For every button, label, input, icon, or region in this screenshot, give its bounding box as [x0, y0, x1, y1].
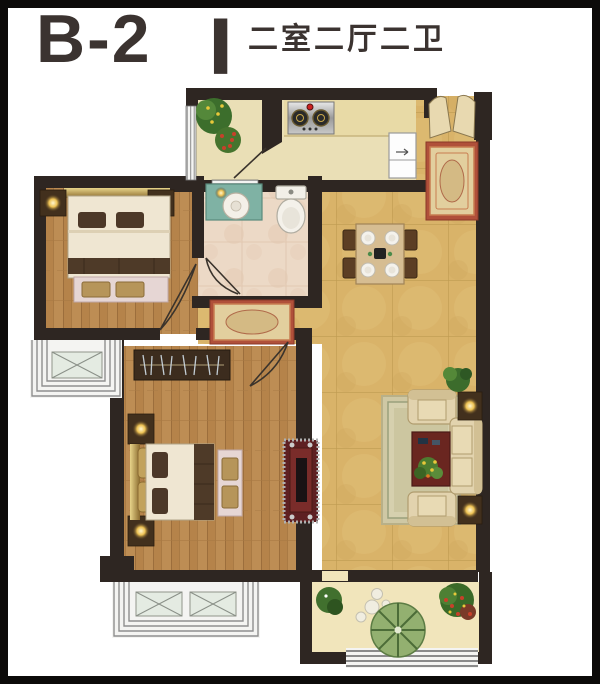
bay-window-bottom — [112, 582, 260, 638]
bed-1-bench — [74, 277, 168, 302]
armchair-icon — [408, 390, 456, 424]
sofa-icon — [450, 418, 482, 494]
dining-chair-icon — [404, 230, 417, 250]
fridge-icon — [389, 133, 416, 178]
wardrobe-icon — [134, 350, 230, 380]
utility-window — [186, 106, 196, 180]
sink-icon — [206, 184, 262, 220]
bed-2-icon — [130, 444, 214, 520]
dining-chair-icon — [404, 258, 417, 278]
bed-2-bench — [218, 450, 242, 516]
bed-1-icon — [68, 196, 170, 278]
side-table-lamp-icon — [458, 496, 482, 524]
bay-window-left — [30, 340, 122, 398]
coffee-table-icon — [412, 432, 450, 486]
nightstand-lamp-icon — [128, 414, 154, 444]
nightstand-lamp-icon — [40, 190, 66, 216]
tv-cabinet-icon — [284, 440, 318, 522]
floorplan-screenshot: B-2 | 二室二厅二卫 — [0, 0, 600, 684]
dining-chair-icon — [343, 258, 356, 278]
dining-table-icon — [356, 224, 404, 284]
entry-rug — [426, 142, 478, 220]
dining-chair-icon — [343, 230, 356, 250]
side-table-lamp-icon — [458, 392, 482, 420]
toilet-icon — [276, 186, 306, 233]
armchair-icon — [408, 492, 456, 526]
floorplan-drawing — [0, 0, 600, 684]
hallway-rug — [210, 300, 294, 344]
